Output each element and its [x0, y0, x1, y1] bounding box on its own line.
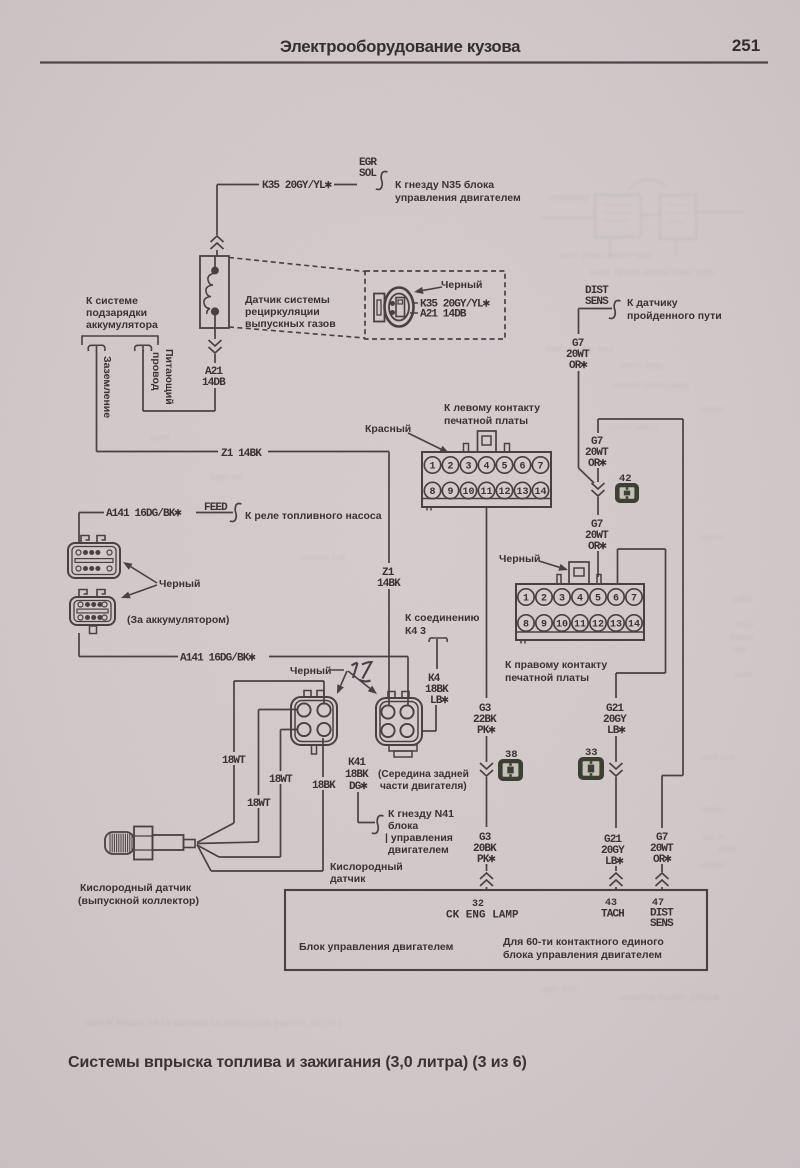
svg-text:К правому контакту: К правому контакту [505, 659, 607, 671]
svg-text:К41: К41 [348, 757, 366, 769]
svg-text:3: 3 [465, 462, 471, 473]
svg-text:влпо ыар: влпо ыар [620, 360, 663, 370]
svg-text:ылвопр аылво рпылв: ылвопр аылво рпылв [620, 992, 720, 1002]
svg-text:печатной платы: печатной платы [444, 415, 528, 427]
svg-text:OR: OR [569, 360, 582, 372]
svg-text:Блок управления двигателем: Блок управления двигателем [299, 941, 454, 953]
svg-text:печатной платы: печатной платы [505, 672, 589, 684]
svg-text:14: 14 [534, 487, 546, 498]
svg-text:подзарядки: подзарядки [86, 307, 147, 319]
svg-text:7: 7 [537, 462, 543, 473]
svg-text:Электрооборудование кузова: Электрооборудование кузова [280, 37, 521, 56]
svg-text:SENS: SENS [650, 918, 674, 930]
svg-text:12: 12 [592, 620, 604, 631]
svg-text:9: 9 [541, 620, 547, 631]
svg-text:К левому контакту: К левому контакту [444, 402, 540, 414]
svg-text:Черный: Черный [159, 578, 200, 590]
svg-text:OR: OR [653, 854, 666, 866]
svg-text:ыптм: ыптм [700, 532, 725, 542]
svg-text:А21 14DB: А21 14DB [420, 309, 467, 321]
svg-text:18BK: 18BK [345, 769, 369, 781]
svg-text:лвоы: лвоы [730, 632, 755, 642]
svg-text:8: 8 [429, 487, 435, 498]
svg-text:ыврл: ыврл [700, 404, 724, 414]
svg-text:К соединению: К соединению [405, 612, 480, 624]
svg-text:ыпаывар: ыпаывар [548, 192, 590, 202]
svg-text:Датчик системы: Датчик системы [245, 294, 330, 306]
svg-text:лво Н Мним А813 вылим ы лиллор: лво Н Мним А813 вылим ы лиллореа рылов п… [85, 1018, 342, 1029]
svg-text:Черный: Черный [441, 279, 482, 291]
svg-text:ывл ао: ывл ао [210, 472, 242, 482]
svg-text:блока: блока [388, 820, 418, 832]
svg-text:ывоы: ывоы [700, 804, 727, 814]
svg-text:Кислородный: Кислородный [330, 861, 403, 873]
svg-text:9: 9 [447, 487, 453, 498]
svg-text:выпускных газов: выпускных газов [245, 318, 336, 330]
svg-text:11: 11 [574, 620, 586, 631]
svg-text:Для 60-ти контактного единого: Для 60-ти контактного единого [503, 936, 664, 948]
svg-text:5: 5 [501, 462, 507, 473]
svg-text:пы л: пы л [702, 832, 724, 842]
svg-text:Кислородный датчик: Кислородный датчик [80, 882, 192, 894]
svg-text:ылв: ылв [150, 432, 169, 442]
svg-text:К датчику: К датчику [627, 297, 678, 309]
svg-text:ылвао рлпы аыв: ылвао рлпы аыв [612, 380, 689, 390]
svg-text:2: 2 [447, 462, 453, 473]
svg-text:2: 2 [541, 594, 547, 605]
svg-text:датчик: датчик [330, 873, 366, 885]
svg-text:блока управления двигателем: блока управления двигателем [503, 949, 662, 961]
svg-text:ыва: ыва [733, 594, 752, 604]
svg-text:13: 13 [516, 487, 528, 498]
svg-text:аккумулятора: аккумулятора [86, 319, 158, 331]
svg-text:ылво апры: ылво апры [608, 422, 659, 432]
svg-text:CK ENG LAMP: CK ENG LAMP [446, 910, 519, 922]
svg-text:(Середина задней: (Середина задней [378, 769, 469, 780]
svg-text:6: 6 [519, 462, 525, 473]
svg-text:ыовр: ыовр [699, 860, 724, 870]
svg-text:6: 6 [613, 594, 619, 605]
svg-text:1: 1 [523, 594, 529, 605]
svg-text:SENS: SENS [585, 296, 609, 308]
svg-text:Питающий: Питающий [163, 349, 175, 405]
svg-text:14: 14 [628, 620, 640, 631]
svg-text:FEED: FEED [204, 502, 228, 514]
svg-text:7: 7 [631, 594, 637, 605]
svg-text:К системе: К системе [86, 295, 138, 307]
svg-text:5: 5 [595, 594, 601, 605]
svg-text:провод: провод [150, 352, 162, 391]
svg-text:К реле топливного насоса: К реле топливного насоса [245, 510, 382, 522]
svg-text:овр: овр [731, 644, 748, 654]
svg-text:Системы впрыска топлива и зажи: Системы впрыска топлива и зажигания (3,0… [68, 1054, 527, 1071]
svg-text:251: 251 [732, 36, 760, 55]
svg-text:А141 16DG/BK: А141 16DG/BK [180, 653, 250, 665]
svg-text:А141 16DG/BK: А141 16DG/BK [106, 508, 176, 520]
svg-text:10: 10 [556, 620, 568, 631]
svg-text:PK: PK [477, 725, 490, 737]
svg-text:управления двигателем: управления двигателем [395, 192, 521, 204]
svg-text:11: 11 [480, 487, 492, 498]
svg-text:DG: DG [349, 781, 362, 793]
svg-text:пройденного пути: пройденного пути [627, 310, 722, 322]
svg-text:10: 10 [462, 487, 474, 498]
svg-text:части двигателя): части двигателя) [380, 781, 467, 792]
svg-text:14BK: 14BK [377, 578, 401, 590]
svg-text:Черный: Черный [290, 665, 331, 677]
svg-text:Черный: Черный [499, 553, 540, 565]
svg-text:| управления: | управления [385, 832, 453, 844]
svg-text:К35 20GY/YL: К35 20GY/YL [262, 180, 326, 192]
svg-text:32: 32 [472, 899, 484, 910]
svg-text:12: 12 [498, 487, 510, 498]
svg-text:4: 4 [577, 594, 583, 605]
svg-text:К гнезду N41: К гнезду N41 [388, 808, 454, 820]
svg-text:ыов прыл авпы лвы рпа: ыов прыл авпы лвы рпа [590, 267, 714, 278]
svg-text:(выпускной коллектор): (выпускной коллектор) [78, 895, 199, 907]
svg-text:LB: LB [607, 725, 620, 737]
svg-text:4: 4 [483, 462, 489, 473]
svg-text:8: 8 [523, 620, 529, 631]
svg-text:43: 43 [605, 898, 617, 909]
svg-text:Красный: Красный [365, 423, 411, 435]
svg-text:ыов: ыов [718, 844, 737, 854]
svg-text:1: 1 [429, 462, 435, 473]
svg-text:PK: PK [477, 854, 490, 866]
svg-text:13: 13 [610, 620, 622, 631]
svg-text:ывп ыл: ывп ыл [700, 752, 735, 762]
svg-text:14DB: 14DB [202, 377, 226, 389]
svg-text:ыоп рпаы ловтл рпа: ыоп рпаы ловтл рпа [560, 250, 653, 260]
svg-text:TACH: TACH [601, 909, 624, 921]
svg-text:SOL: SOL [359, 168, 377, 180]
svg-text:рециркуляции: рециркуляции [245, 306, 320, 318]
svg-text:К4 3: К4 3 [405, 625, 426, 637]
svg-text:(За аккумулятором): (За аккумулятором) [127, 614, 229, 626]
svg-text:лпы: лпы [735, 619, 754, 629]
svg-text:Z1 14BK: Z1 14BK [221, 448, 262, 460]
svg-text:ыалвп ыв: ыалвп ыв [300, 552, 346, 562]
svg-text:3: 3 [559, 594, 565, 605]
svg-text:ыво лпа: ыво лпа [540, 984, 578, 994]
svg-text:ыпа: ыпа [734, 669, 753, 679]
svg-text:К гнезду N35 блока: К гнезду N35 блока [395, 179, 494, 191]
svg-text:Заземление: Заземление [101, 356, 113, 418]
svg-text:18BK: 18BK [312, 780, 336, 792]
svg-text:двигателем: двигателем [388, 844, 449, 856]
